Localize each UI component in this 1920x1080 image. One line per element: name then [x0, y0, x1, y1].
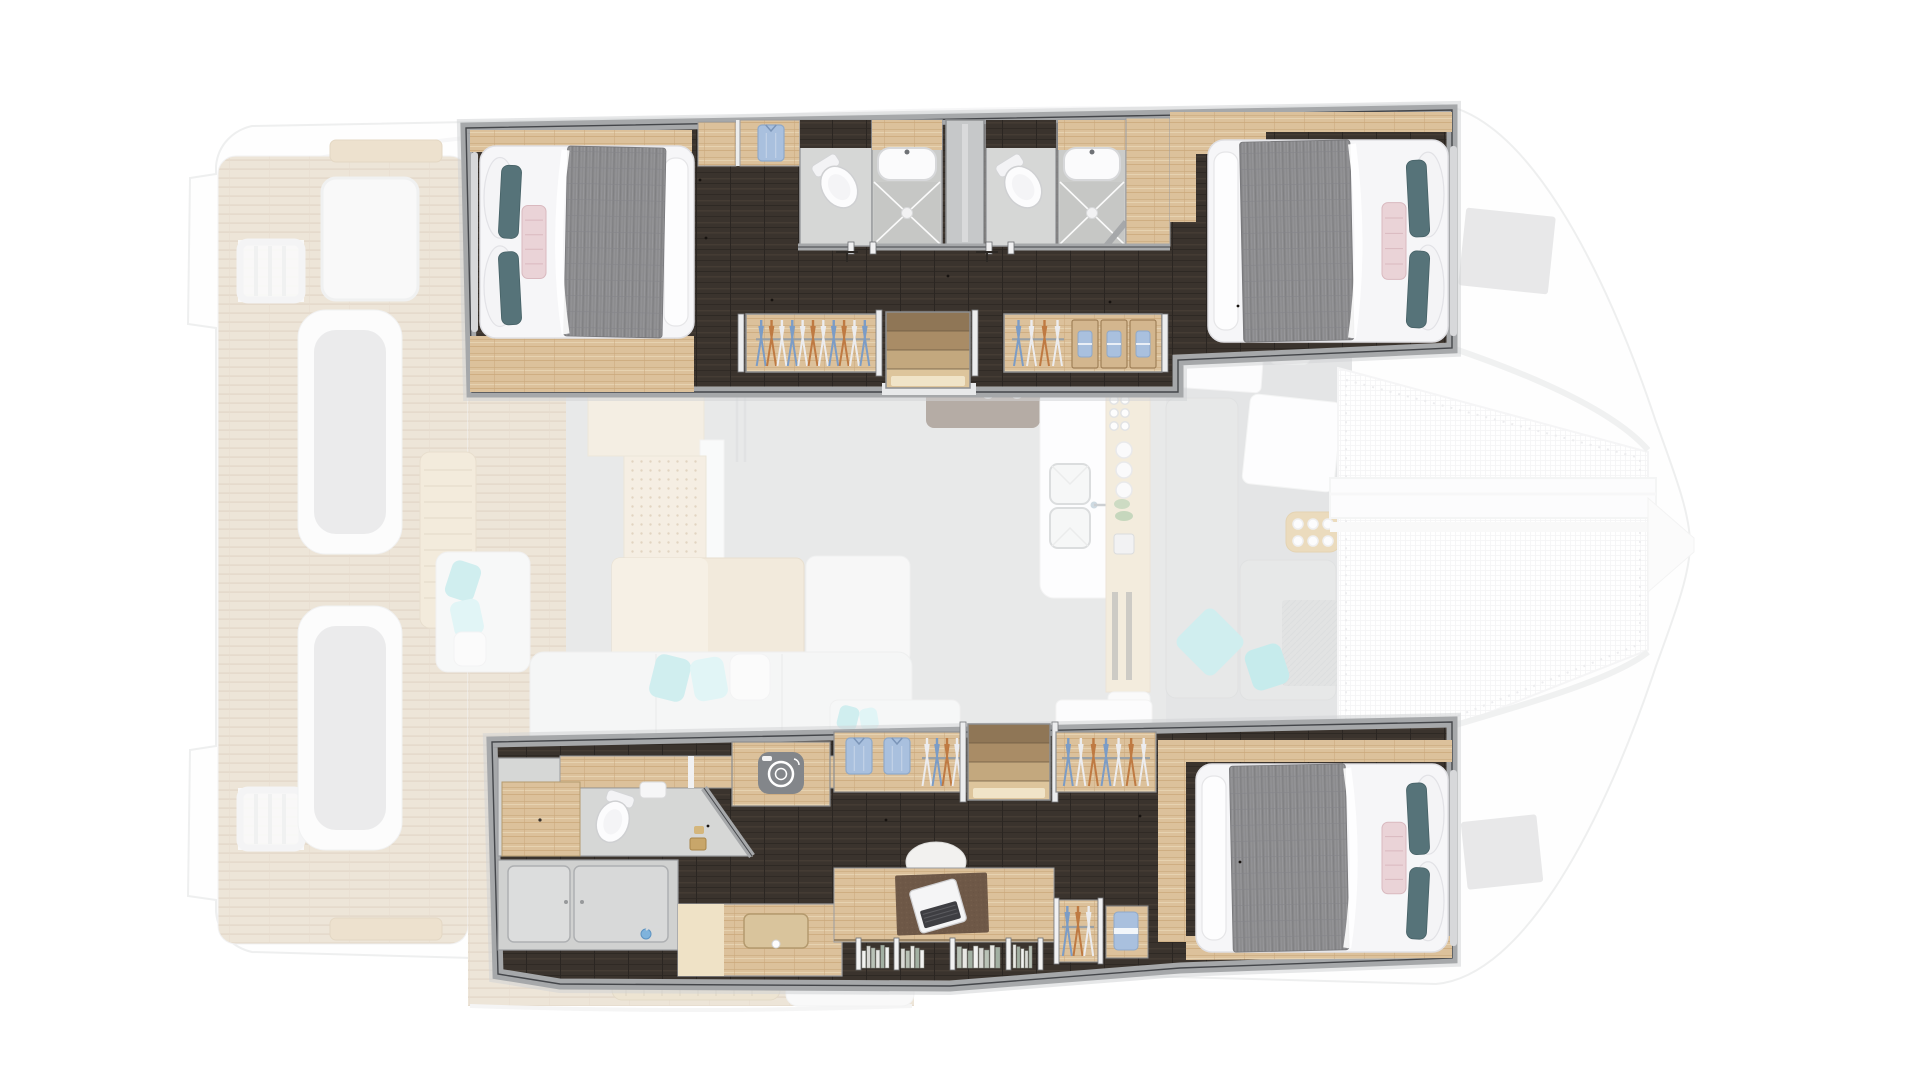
book-spine — [906, 951, 910, 968]
office-hanging-locker — [1054, 898, 1148, 964]
helm-seat-cushion — [314, 330, 386, 534]
davit-ladder-top — [238, 240, 304, 302]
blanket — [1240, 140, 1355, 342]
transom-trim — [470, 1006, 912, 1010]
vanity-knob — [538, 818, 541, 821]
teal-pillow — [498, 251, 522, 325]
teal-pillow — [498, 165, 522, 239]
footboard — [664, 158, 688, 326]
book-spine — [974, 946, 979, 968]
pink-lumbar-pillow — [522, 206, 546, 279]
washing-machine-icon — [758, 752, 804, 794]
stair-tread — [886, 350, 970, 370]
round-item — [1308, 536, 1318, 546]
book-spine — [881, 945, 885, 968]
book-spine — [990, 945, 995, 968]
teal-pillow — [1406, 783, 1430, 855]
pink-lumbar-pillow — [1382, 822, 1406, 893]
door-jamb — [1008, 242, 1014, 254]
laundry-closet — [732, 742, 830, 806]
teal-pillow — [1406, 251, 1430, 329]
round-item — [1116, 482, 1132, 498]
bow-hatch-top — [1458, 208, 1556, 295]
headboard — [1450, 146, 1457, 336]
double-bed — [1196, 764, 1457, 952]
door-jamb — [1054, 898, 1059, 964]
fore-table — [1242, 393, 1343, 492]
book-spine — [862, 951, 866, 968]
cabin-forward-port — [1170, 112, 1457, 342]
nav-desk — [588, 396, 704, 456]
door-jamb — [1098, 898, 1103, 964]
headboard — [471, 152, 478, 332]
upper-cabinet-band — [560, 756, 880, 788]
vanity-counter — [1058, 120, 1126, 150]
double-bed — [1208, 140, 1457, 342]
door-handle — [580, 900, 584, 904]
double-bed — [471, 146, 694, 338]
forward-counter — [1126, 118, 1170, 246]
stair-landing-glow — [973, 788, 1045, 798]
book-spine — [1021, 949, 1024, 968]
sliding-door — [946, 120, 984, 246]
stove-module — [1114, 534, 1134, 554]
door-jamb — [870, 242, 876, 254]
cabin-forward-starboard — [1158, 740, 1457, 960]
jamb — [736, 120, 740, 166]
door-jamb — [960, 722, 966, 802]
linen-closet — [740, 120, 802, 166]
stair-tread — [968, 743, 1050, 763]
book-spine — [920, 950, 924, 968]
companionway-stairs — [968, 724, 1050, 801]
cockpit-hatch-window — [322, 178, 418, 300]
round-item — [1121, 422, 1129, 430]
teal-pillow — [1406, 160, 1430, 238]
round-item — [1308, 519, 1318, 529]
book-spine — [901, 949, 905, 968]
textured-mat-lines — [1282, 600, 1340, 686]
book-spine — [911, 946, 915, 968]
towel-niche — [1106, 906, 1148, 958]
speaker-cabinet — [624, 456, 706, 560]
book-spine — [957, 947, 962, 968]
round-item — [1110, 409, 1118, 417]
round-item — [1116, 442, 1132, 458]
round-item — [1116, 462, 1132, 478]
book-spine — [985, 950, 990, 968]
book-spine — [1029, 946, 1032, 968]
gold-accessory — [694, 826, 704, 834]
book-spine — [979, 948, 984, 968]
round-item — [1293, 519, 1303, 529]
basin-drain — [772, 940, 780, 948]
book-spine — [915, 948, 919, 968]
floor-plan-canvas: Catamaran yacht interior floor plan — 4-… — [0, 0, 1920, 1080]
crossbeam-strip — [1330, 522, 1656, 532]
book-spine — [1013, 945, 1016, 968]
footboard — [1202, 776, 1226, 940]
book-spine — [867, 946, 871, 968]
shower-door-panel — [508, 866, 570, 942]
stern-bench-bottom — [330, 918, 442, 940]
bathroom-aft — [800, 120, 942, 246]
catamaran-floor-plan: Catamaran yacht interior floor plan — 4-… — [0, 0, 1920, 1080]
washbasin-counter — [678, 904, 842, 976]
corner-shelf-side — [1170, 154, 1196, 222]
footboard — [1214, 152, 1238, 330]
headboard-shelf — [1170, 112, 1452, 132]
wardrobe-starboard-forward — [1056, 732, 1156, 792]
cabin-wood-floor — [470, 336, 694, 392]
shower-door-panel — [574, 866, 668, 942]
bow-hatch-bottom — [1461, 814, 1544, 890]
round-item — [1293, 536, 1303, 546]
bottom-hull — [492, 722, 1457, 986]
stair-tread — [968, 724, 1050, 744]
forward-crossbeam — [1330, 478, 1656, 518]
toilet-room-counter — [986, 120, 1056, 148]
cabin-aft-port — [470, 130, 694, 392]
herb-plant — [1114, 499, 1130, 509]
book-spine — [885, 947, 889, 968]
shelf-divider — [1006, 938, 1011, 970]
davit-ladder-bottom — [238, 788, 304, 850]
towel-rail — [1126, 592, 1132, 680]
door-jamb — [1162, 314, 1168, 372]
companionway-stairs — [886, 312, 970, 389]
book-spine — [876, 950, 880, 968]
round-item — [1110, 422, 1118, 430]
basin-faucet — [905, 150, 910, 155]
top-hull — [466, 110, 1457, 395]
herb-plant — [1115, 511, 1133, 521]
pink-lumbar-pillow — [1382, 203, 1406, 280]
book-spine — [871, 948, 875, 968]
shelf-divider — [950, 938, 955, 970]
book-spine — [968, 951, 973, 968]
shower-tray — [874, 182, 940, 244]
door-jamb — [876, 310, 882, 376]
stair-tread — [886, 331, 970, 351]
book-spine — [996, 947, 1001, 968]
door-handle — [564, 900, 568, 904]
teal-pillow — [1406, 867, 1430, 939]
shelf-divider — [894, 938, 899, 970]
wardrobe-starboard-aft — [834, 732, 966, 792]
shower-room-starboard — [498, 860, 678, 950]
door-jamb — [738, 314, 744, 372]
shelf-divider — [856, 938, 861, 970]
towel-rail — [1112, 592, 1118, 680]
plate-stack — [1116, 442, 1132, 498]
aft-bench-cushion — [314, 626, 386, 830]
vanity-counter — [872, 120, 942, 150]
book-spine — [963, 949, 968, 968]
round-item — [1323, 536, 1333, 546]
shelf-divider — [1038, 938, 1043, 970]
wardrobe-port-aft — [746, 314, 880, 372]
book-spine — [1025, 951, 1028, 968]
stair-landing-glow — [891, 376, 965, 386]
shelf-niche — [698, 122, 736, 166]
round-item — [1121, 409, 1129, 417]
stair-tread — [886, 312, 970, 332]
wardrobe-port-forward — [1004, 314, 1162, 372]
headboard-shelf — [1158, 740, 1452, 762]
book-spine — [1017, 947, 1020, 968]
door-jamb — [972, 310, 978, 376]
basin-faucet — [1090, 150, 1095, 155]
blanket — [564, 146, 666, 338]
port-chaise — [436, 552, 530, 672]
dinette — [612, 556, 910, 664]
stair-tread — [968, 762, 1050, 782]
corner-shelf-side — [1158, 762, 1186, 942]
blanket — [1229, 764, 1349, 952]
gold-accessory — [690, 838, 706, 850]
stern-bench-top — [330, 140, 442, 162]
toilet-room-counter — [800, 120, 872, 148]
headboard — [1450, 770, 1457, 946]
bathroom-forward — [986, 120, 1126, 246]
cistern — [640, 782, 666, 798]
